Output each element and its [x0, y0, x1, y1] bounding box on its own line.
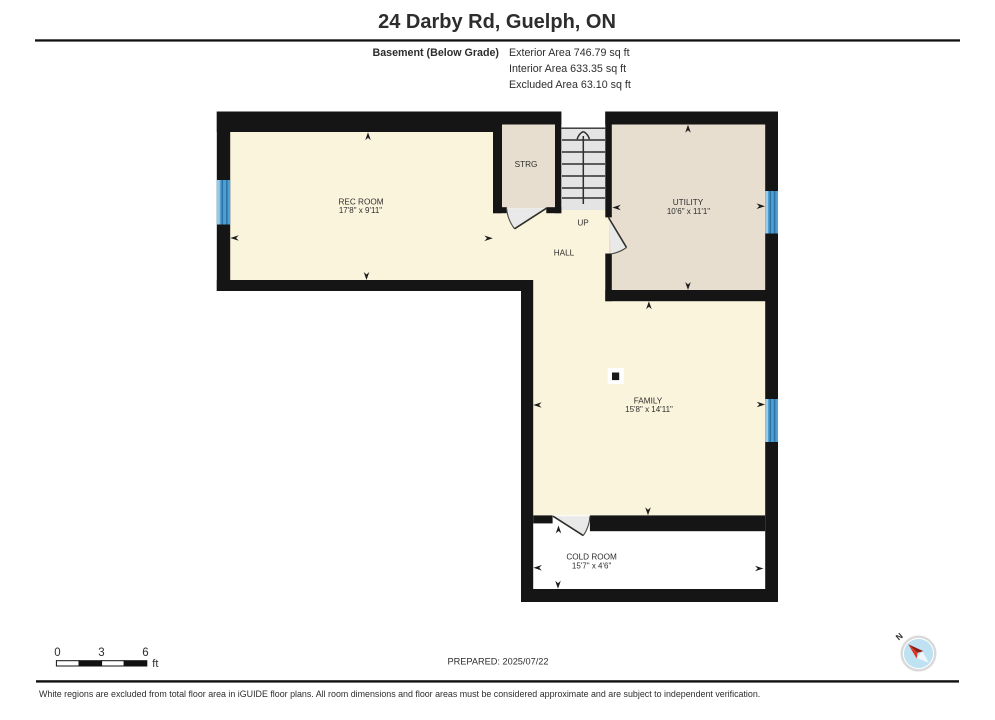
svg-text:Exterior Area 746.79 sq ft: Exterior Area 746.79 sq ft [509, 47, 630, 59]
svg-text:24 Darby Rd, Guelph, ON: 24 Darby Rd, Guelph, ON [378, 11, 616, 33]
svg-text:3: 3 [98, 647, 104, 659]
svg-text:COLD ROOM: COLD ROOM [566, 552, 617, 561]
svg-text:STRG: STRG [515, 160, 538, 169]
svg-text:White regions are excluded fro: White regions are excluded from total fl… [39, 689, 760, 699]
svg-text:Basement (Below Grade): Basement (Below Grade) [372, 47, 499, 59]
svg-text:6: 6 [142, 647, 148, 659]
svg-text:Excluded Area 63.10 sq ft: Excluded Area 63.10 sq ft [509, 79, 631, 91]
svg-text:UTILITY: UTILITY [673, 198, 704, 207]
svg-text:ft: ft [152, 658, 158, 670]
svg-text:0: 0 [54, 647, 60, 659]
svg-text:15'7" x 4'6": 15'7" x 4'6" [572, 562, 612, 571]
svg-text:HALL: HALL [554, 249, 575, 258]
svg-text:PREPARED: 2025/07/22: PREPARED: 2025/07/22 [448, 657, 549, 667]
svg-text:Interior Area 633.35 sq ft: Interior Area 633.35 sq ft [509, 63, 626, 75]
svg-text:15'8" x 14'11": 15'8" x 14'11" [625, 405, 673, 414]
svg-text:10'6" x 11'1": 10'6" x 11'1" [667, 207, 710, 216]
svg-text:17'8" x 9'11": 17'8" x 9'11" [339, 206, 382, 215]
svg-text:UP: UP [577, 219, 589, 228]
